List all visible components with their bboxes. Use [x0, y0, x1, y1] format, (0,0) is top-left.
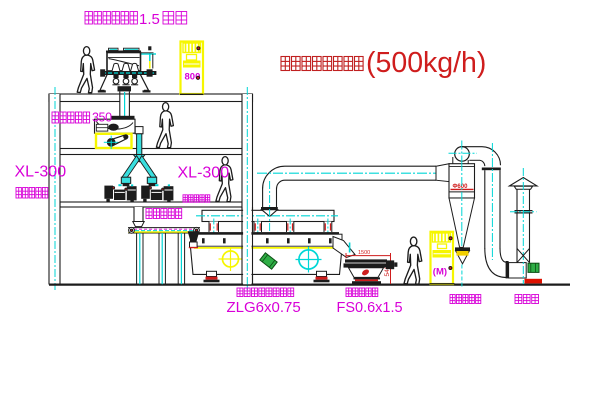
svg-text:ZLG6x0.75: ZLG6x0.75: [227, 299, 301, 316]
svg-text:FS0.6x1.5: FS0.6x1.5: [337, 300, 403, 316]
svg-text:(M): (M): [433, 267, 447, 278]
svg-text:1.5: 1.5: [139, 11, 160, 28]
svg-text:XL-300: XL-300: [178, 165, 230, 182]
svg-text:1500: 1500: [358, 250, 370, 256]
svg-text:XL-300: XL-300: [15, 164, 67, 181]
svg-text:350: 350: [92, 111, 112, 125]
svg-text:(500kg/h): (500kg/h): [366, 47, 486, 79]
